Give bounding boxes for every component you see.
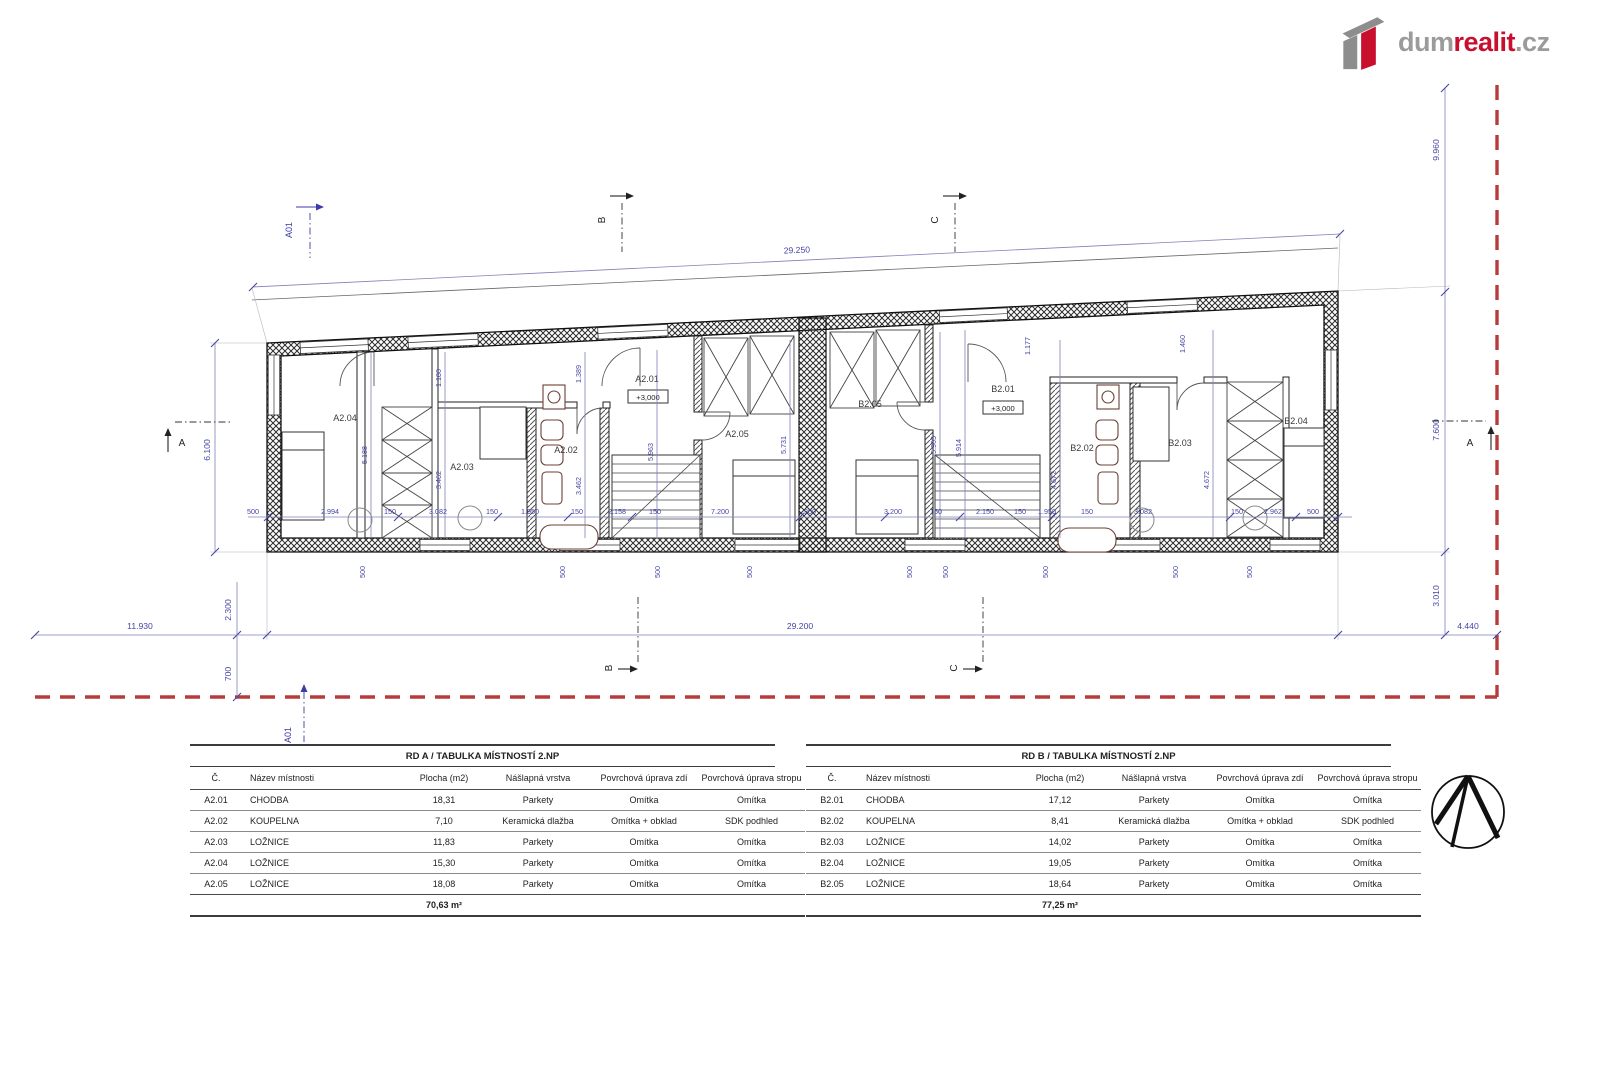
- floorplan-drawing: 29.250: [0, 0, 1620, 1080]
- table-cell: Omítka: [698, 874, 805, 895]
- room-label-b203: B2.03: [1168, 438, 1192, 448]
- dim-label: 5.905: [929, 436, 938, 454]
- table-row: B2.05LOŽNICE18,64ParketyOmítkaOmítka: [806, 874, 1421, 895]
- dim-label: 5.731: [779, 436, 788, 454]
- stairs-unit-a: [612, 455, 700, 538]
- dim-label: 150: [384, 507, 396, 516]
- table-cell: 18,64: [1018, 874, 1102, 895]
- table-cell: B2.03: [806, 832, 858, 853]
- table-cell: A2.01: [190, 790, 242, 811]
- col-header: Plocha (m2): [1018, 767, 1102, 790]
- room-label-a202: A2.02: [554, 445, 578, 455]
- table-b-title: RD B / TABULKA MÍSTNOSTÍ 2.NP: [806, 744, 1391, 767]
- table-cell: CHODBA: [858, 790, 1018, 811]
- table-a-title: RD A / TABULKA MÍSTNOSTÍ 2.NP: [190, 744, 775, 767]
- level-label-a: +3,000: [636, 393, 659, 402]
- north-arrow-icon: [1432, 776, 1504, 848]
- table-row: B2.01CHODBA17,12ParketyOmítkaOmítka: [806, 790, 1421, 811]
- dim-label: 500: [1041, 566, 1050, 578]
- dim-label: 29.250: [783, 244, 810, 255]
- section-label-a-left: A: [179, 438, 186, 449]
- table-cell: Keramická dlažba: [1102, 811, 1206, 832]
- col-header: Povrchová úprava stropu: [1314, 767, 1421, 790]
- table-cell: B2.04: [806, 853, 858, 874]
- table-cell: SDK podhled: [1314, 811, 1421, 832]
- table-cell: Parkety: [486, 853, 590, 874]
- table-cell: Keramická dlažba: [486, 811, 590, 832]
- col-header: Nášlapná vrstva: [486, 767, 590, 790]
- section-label-c-bottom: C: [949, 664, 960, 671]
- logo-building-icon: [1341, 12, 1389, 72]
- table-cell: Omítka: [590, 874, 698, 895]
- table-cell: Omítka: [1206, 874, 1314, 895]
- dim-label: 2.300: [223, 599, 233, 621]
- table-cell: CHODBA: [242, 790, 402, 811]
- table-cell: Parkety: [1102, 853, 1206, 874]
- table-cell: 8,41: [1018, 811, 1102, 832]
- table-row: A2.03LOŽNICE11,83ParketyOmítkaOmítka: [190, 832, 805, 853]
- table-row: B2.02KOUPELNA8,41Keramická dlažbaOmítka …: [806, 811, 1421, 832]
- room-table-b: RD B / TABULKA MÍSTNOSTÍ 2.NP Č. Název m…: [806, 744, 1391, 917]
- dim-label: 4.672: [1049, 471, 1058, 489]
- table-cell: B2.02: [806, 811, 858, 832]
- section-label-a01-top: A01: [284, 222, 294, 238]
- dim-label: 700: [223, 667, 233, 682]
- floorplan-page: 29.250: [0, 0, 1620, 1080]
- table-cell: Omítka: [1314, 874, 1421, 895]
- dim-top: 29.250: [249, 230, 1344, 291]
- dim-label: 500: [941, 566, 950, 578]
- table-cell: 19,05: [1018, 853, 1102, 874]
- room-label-a204: A2.04: [333, 413, 357, 423]
- dim-label: 5.963: [646, 443, 655, 461]
- col-header: Povrchová úprava stropu: [698, 767, 805, 790]
- table-a-body: A2.01CHODBA18,31ParketyOmítkaOmítkaA2.02…: [190, 790, 805, 895]
- dim-label: 2.158: [608, 507, 626, 516]
- table-a-total: 70,63 m²: [402, 895, 486, 917]
- table-cell: A2.02: [190, 811, 242, 832]
- dim-label: 11.930: [127, 621, 153, 631]
- table-cell: LOŽNICE: [242, 832, 402, 853]
- table-row: B2.03LOŽNICE14,02ParketyOmítkaOmítka: [806, 832, 1421, 853]
- table-b-body: B2.01CHODBA17,12ParketyOmítkaOmítkaB2.02…: [806, 790, 1421, 895]
- dim-label: 500: [905, 566, 914, 578]
- logo: dumrealit.cz: [1341, 12, 1550, 72]
- table-cell: Omítka: [1206, 832, 1314, 853]
- section-label-c-top: C: [930, 216, 941, 223]
- table-row: A2.05LOŽNICE18,08ParketyOmítkaOmítka: [190, 874, 805, 895]
- bathroom-fixtures-b: [1058, 385, 1119, 552]
- dim-label: 1.180: [434, 369, 443, 387]
- dim-label: 500: [745, 566, 754, 578]
- dim-label: 3.462: [434, 471, 443, 489]
- section-label-a-right: A: [1467, 438, 1474, 449]
- table-cell: Omítka: [698, 853, 805, 874]
- dim-label: 1.950: [521, 507, 539, 516]
- section-label-a01-bottom: A01: [283, 727, 293, 743]
- dim-label: 7.200: [711, 507, 729, 516]
- table-cell: Omítka + obklad: [1206, 811, 1314, 832]
- dim-label: 4.672: [1202, 471, 1211, 489]
- stairs-unit-b: [935, 455, 1040, 538]
- section-label-b-bottom: B: [604, 664, 615, 671]
- room-label-a205: A2.05: [725, 429, 749, 439]
- col-header: Název místnosti: [858, 767, 1018, 790]
- table-cell: B2.05: [806, 874, 858, 895]
- dim-label: 29.200: [787, 621, 814, 631]
- table-a-total-row: 70,63 m²: [190, 895, 805, 917]
- dim-label: 300: [804, 507, 816, 516]
- table-cell: A2.03: [190, 832, 242, 853]
- dim-label: 500: [653, 566, 662, 578]
- dim-label: 5.914: [954, 439, 963, 457]
- table-cell: Parkety: [486, 790, 590, 811]
- table-cell: LOŽNICE: [858, 853, 1018, 874]
- room-label-b204: B2.04: [1284, 416, 1308, 426]
- table-cell: A2.05: [190, 874, 242, 895]
- table-cell: LOŽNICE: [242, 853, 402, 874]
- table-row: A2.01CHODBA18,31ParketyOmítkaOmítka: [190, 790, 805, 811]
- dim-label: 3.010: [1431, 585, 1441, 607]
- table-row: A2.02KOUPELNA7,10Keramická dlažbaOmítka …: [190, 811, 805, 832]
- dim-label: 1.389: [574, 365, 583, 383]
- table-b-total-row: 77,25 m²: [806, 895, 1421, 917]
- dim-label: 1.177: [1023, 337, 1032, 355]
- table-cell: 14,02: [1018, 832, 1102, 853]
- table-cell: B2.01: [806, 790, 858, 811]
- table-cell: 17,12: [1018, 790, 1102, 811]
- col-header: Č.: [806, 767, 858, 790]
- logo-dum: dum: [1398, 27, 1454, 57]
- room-label-b202: B2.02: [1070, 443, 1094, 453]
- dim-label: 4.440: [1457, 621, 1479, 631]
- table-cell: LOŽNICE: [242, 874, 402, 895]
- logo-cz: .cz: [1515, 27, 1550, 57]
- table-row: B2.04LOŽNICE19,05ParketyOmítkaOmítka: [806, 853, 1421, 874]
- logo-realit: realit: [1454, 27, 1516, 57]
- room-label-a201: A2.01: [635, 374, 659, 384]
- bathroom-fixtures-a: [540, 385, 598, 549]
- dim-label: 3.462: [574, 477, 583, 495]
- table-cell: Parkety: [486, 874, 590, 895]
- dim-label: 1.950: [1038, 507, 1056, 516]
- col-header: Plocha (m2): [402, 767, 486, 790]
- dim-label: 150: [1081, 507, 1093, 516]
- table-cell: Parkety: [1102, 790, 1206, 811]
- table-cell: Parkety: [1102, 874, 1206, 895]
- table-cell: 11,83: [402, 832, 486, 853]
- room-label-b201: B2.01: [991, 384, 1015, 394]
- logo-text: dumrealit.cz: [1398, 27, 1550, 58]
- table-cell: Omítka: [1314, 790, 1421, 811]
- table-cell: 7,10: [402, 811, 486, 832]
- table-cell: Omítka: [1206, 853, 1314, 874]
- col-header: Nášlapná vrstva: [1102, 767, 1206, 790]
- dim-label: 150: [571, 507, 583, 516]
- room-label-b205: B2.05: [858, 399, 882, 409]
- dim-label: 3.082: [429, 507, 447, 516]
- table-cell: Omítka: [1314, 832, 1421, 853]
- table-row: A2.04LOŽNICE15,30ParketyOmítkaOmítka: [190, 853, 805, 874]
- table-cell: Parkety: [1102, 832, 1206, 853]
- table-cell: Omítka: [1206, 790, 1314, 811]
- table-cell: KOUPELNA: [242, 811, 402, 832]
- dim-label: 500: [1245, 566, 1254, 578]
- col-header: Č.: [190, 767, 242, 790]
- table-cell: Omítka: [590, 853, 698, 874]
- dim-label: 6.100: [202, 439, 212, 461]
- dim-label: 500: [247, 507, 259, 516]
- dim-label: 3.200: [884, 507, 902, 516]
- table-cell: SDK podhled: [698, 811, 805, 832]
- dim-label: 500: [1307, 507, 1319, 516]
- dim-label: 500: [558, 566, 567, 578]
- section-label-b-top: B: [597, 216, 608, 223]
- dim-label: 3.082: [1134, 507, 1152, 516]
- dim-label: 150: [1231, 507, 1243, 516]
- table-cell: A2.04: [190, 853, 242, 874]
- col-header: Název místnosti: [242, 767, 402, 790]
- table-cell: Omítka: [698, 832, 805, 853]
- level-label-b: +3,000: [991, 404, 1014, 413]
- dim-label: 150: [1014, 507, 1026, 516]
- table-b-header: Č. Název místnosti Plocha (m2) Nášlapná …: [806, 767, 1421, 790]
- table-cell: Omítka + obklad: [590, 811, 698, 832]
- col-header: Povrchová úprava zdí: [1206, 767, 1314, 790]
- dim-label: 7.600: [1431, 419, 1441, 441]
- dim-label: 5.188: [360, 446, 369, 464]
- table-cell: Omítka: [698, 790, 805, 811]
- table-a-header: Č. Název místnosti Plocha (m2) Nášlapná …: [190, 767, 805, 790]
- dim-label: 1.460: [1178, 335, 1187, 353]
- table-cell: LOŽNICE: [858, 874, 1018, 895]
- table-cell: KOUPELNA: [858, 811, 1018, 832]
- table-cell: LOŽNICE: [858, 832, 1018, 853]
- room-table-a: RD A / TABULKA MÍSTNOSTÍ 2.NP Č. Název m…: [190, 744, 775, 917]
- table-cell: Omítka: [590, 790, 698, 811]
- col-header: Povrchová úprava zdí: [590, 767, 698, 790]
- dim-label: 2.150: [976, 507, 994, 516]
- dim-label: 500: [1171, 566, 1180, 578]
- table-cell: Omítka: [1314, 853, 1421, 874]
- room-label-a203: A2.03: [450, 462, 474, 472]
- dim-label: 2.962: [1264, 507, 1282, 516]
- dim-label: 150: [930, 507, 942, 516]
- table-cell: Omítka: [590, 832, 698, 853]
- table-cell: 15,30: [402, 853, 486, 874]
- dim-label: 150: [649, 507, 661, 516]
- dim-label: 9.960: [1431, 139, 1441, 161]
- table-b-total: 77,25 m²: [1018, 895, 1102, 917]
- dim-label: 500: [358, 566, 367, 578]
- table-cell: 18,08: [402, 874, 486, 895]
- table-cell: 18,31: [402, 790, 486, 811]
- dim-label: 150: [486, 507, 498, 516]
- table-cell: Parkety: [486, 832, 590, 853]
- dim-label: 2.994: [321, 507, 339, 516]
